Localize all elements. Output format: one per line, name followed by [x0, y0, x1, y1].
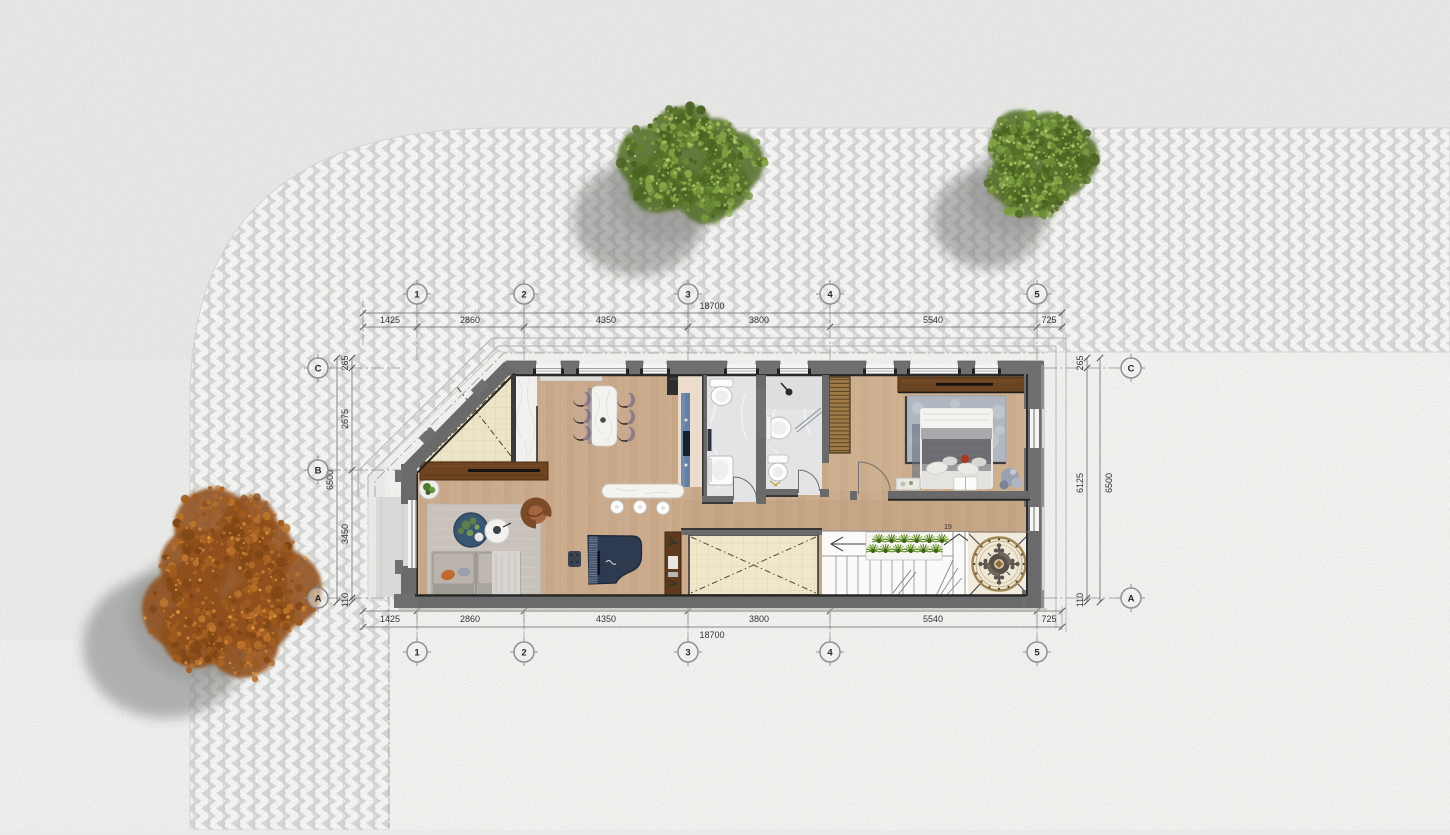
svg-text:3: 3 [685, 647, 690, 658]
svg-text:18700: 18700 [699, 630, 724, 640]
svg-text:725: 725 [1041, 315, 1056, 325]
svg-text:2675: 2675 [340, 409, 350, 429]
svg-text:1425: 1425 [380, 614, 400, 624]
svg-text:5: 5 [1034, 647, 1040, 658]
svg-text:A: A [315, 593, 322, 604]
svg-text:1: 1 [414, 289, 420, 300]
svg-text:110: 110 [1075, 593, 1085, 607]
svg-text:5540: 5540 [923, 315, 943, 325]
svg-text:4350: 4350 [596, 614, 616, 624]
svg-text:2: 2 [521, 289, 526, 300]
svg-text:C: C [315, 363, 322, 374]
svg-text:110: 110 [340, 593, 350, 607]
svg-text:725: 725 [1041, 614, 1056, 624]
svg-text:4: 4 [827, 647, 833, 658]
svg-text:1425: 1425 [380, 315, 400, 325]
svg-text:3800: 3800 [749, 614, 769, 624]
svg-text:2860: 2860 [460, 614, 480, 624]
svg-text:C: C [1128, 363, 1135, 374]
svg-text:1: 1 [414, 647, 420, 658]
svg-text:19: 19 [944, 524, 952, 531]
svg-text:3450: 3450 [340, 524, 350, 544]
svg-text:4350: 4350 [596, 315, 616, 325]
svg-text:2860: 2860 [460, 315, 480, 325]
svg-text:A: A [1128, 593, 1135, 604]
svg-text:5: 5 [1034, 289, 1040, 300]
svg-text:6500: 6500 [1104, 473, 1114, 493]
svg-text:265: 265 [1075, 355, 1085, 370]
svg-text:4: 4 [827, 289, 833, 300]
svg-text:6125: 6125 [1075, 473, 1085, 493]
svg-text:3: 3 [685, 289, 690, 300]
svg-text:265: 265 [340, 355, 350, 370]
svg-text:18700: 18700 [699, 301, 724, 311]
svg-text:B: B [315, 465, 322, 476]
svg-text:3800: 3800 [749, 315, 769, 325]
svg-text:2: 2 [521, 647, 526, 658]
svg-text:5540: 5540 [923, 614, 943, 624]
